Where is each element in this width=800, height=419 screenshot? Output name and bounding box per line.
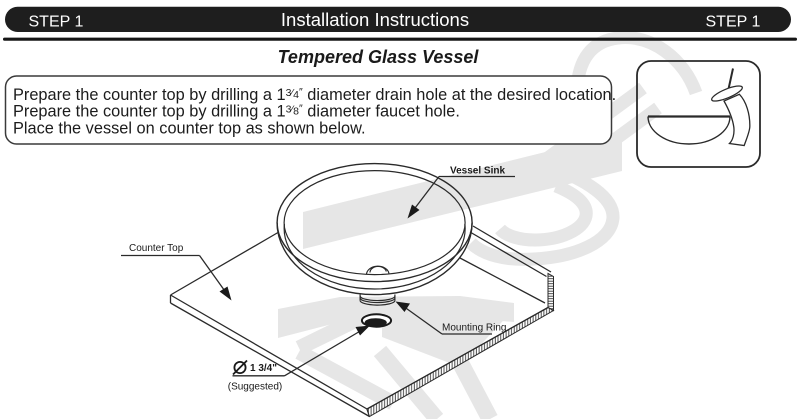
svg-text:Place the vessel on counter to: Place the vessel on counter top as shown…	[13, 120, 366, 138]
svg-text:STEP 1: STEP 1	[706, 13, 761, 30]
svg-text:Prepare the counter top by dri: Prepare the counter top by drilling a 13…	[13, 103, 460, 121]
svg-text:Prepare the counter top by dri: Prepare the counter top by drilling a 13…	[13, 86, 616, 104]
svg-text:1 3/4": 1 3/4"	[250, 363, 277, 374]
svg-text:(Suggested): (Suggested)	[228, 382, 282, 393]
svg-text:Vessel Sink: Vessel Sink	[450, 166, 505, 177]
svg-text:Installation Instructions: Installation Instructions	[281, 9, 469, 30]
svg-text:Mounting Ring: Mounting Ring	[442, 323, 506, 334]
svg-text:Tempered Glass Vessel: Tempered Glass Vessel	[278, 47, 480, 67]
svg-text:STEP 1: STEP 1	[29, 13, 84, 30]
svg-text:Counter Top: Counter Top	[129, 243, 184, 254]
